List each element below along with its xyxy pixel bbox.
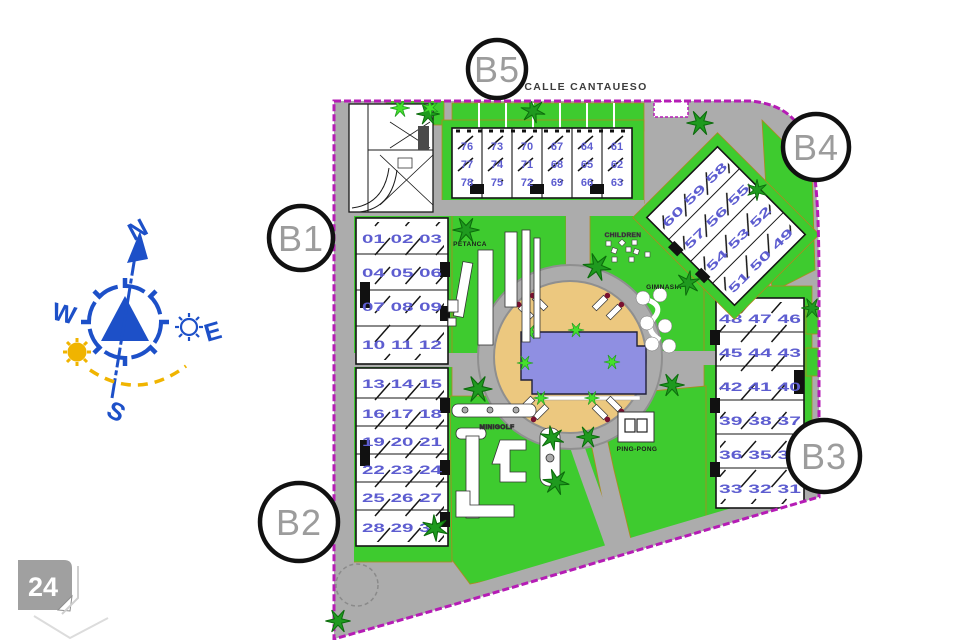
svg-text:13 14 15: 13 14 15 — [362, 377, 443, 391]
svg-text:676869: 676869 — [551, 141, 563, 189]
svg-text:B5: B5 — [474, 49, 520, 90]
svg-text:45 44 43: 45 44 43 — [719, 346, 802, 360]
compass-s: S — [102, 396, 130, 429]
pingpong-label: PING-PONG — [617, 446, 658, 453]
compass-e: E — [201, 316, 225, 348]
svg-text:737475: 737475 — [491, 141, 504, 189]
badge-echo2 — [34, 616, 108, 638]
building-b1: 01 02 03 04 05 06 07 08 09 10 11 12 — [356, 218, 450, 364]
svg-text:B4: B4 — [793, 127, 839, 168]
svg-text:25 26 27: 25 26 27 — [362, 491, 443, 505]
entrance-block — [349, 104, 433, 212]
svg-text:19 20 21: 19 20 21 — [362, 435, 443, 449]
page-badge: 24 — [18, 560, 108, 638]
site-area: 767778 737475 707172 676869 646566 61626… — [320, 90, 840, 640]
svg-text:22 23 24: 22 23 24 — [362, 463, 443, 477]
svg-text:39 38 37: 39 38 37 — [719, 414, 802, 428]
svg-text:10 11 12: 10 11 12 — [362, 338, 443, 352]
svg-text:707172: 707172 — [521, 141, 533, 189]
site-plan-drawing: 767778 737475 707172 676869 646566 61626… — [0, 0, 960, 640]
stair-marks — [454, 132, 630, 182]
compass-w: W — [49, 298, 79, 331]
block-badge-b3: B3 — [788, 420, 860, 492]
utility-plot — [654, 101, 688, 117]
sun-outline-icon — [175, 313, 203, 341]
block-badge-b1: B1 — [269, 206, 333, 270]
svg-text:33 32 31: 33 32 31 — [719, 482, 802, 496]
badge-number: 24 — [28, 572, 58, 602]
children-label: CHILDREN — [605, 232, 642, 239]
svg-text:04 05 06: 04 05 06 — [362, 266, 443, 280]
street-label: CALLE CANTAUESO — [524, 81, 647, 93]
svg-text:42 41 40: 42 41 40 — [719, 380, 802, 394]
svg-text:616263: 616263 — [611, 141, 623, 189]
svg-text:B2: B2 — [276, 502, 322, 543]
sun-icon — [63, 338, 91, 366]
block-badge-b2: B2 — [260, 483, 338, 561]
swimming-pool — [521, 332, 646, 394]
svg-text:B3: B3 — [801, 436, 847, 477]
svg-text:767778: 767778 — [461, 141, 473, 189]
svg-text:16 17 18: 16 17 18 — [362, 407, 443, 421]
petanca-label: PETANCA — [453, 241, 487, 248]
compass-n: N — [123, 213, 152, 246]
svg-text:07 08 09: 07 08 09 — [362, 300, 443, 314]
block-badge-b4: B4 — [783, 114, 849, 180]
svg-text:646566: 646566 — [581, 141, 594, 189]
stair-marks — [720, 302, 800, 504]
minigolf-label: MINIGOLF — [480, 424, 515, 431]
svg-text:01 02 03: 01 02 03 — [362, 232, 443, 246]
lawn-parking-b3 — [806, 348, 818, 376]
block-badge-b5: B5 — [468, 40, 526, 98]
sun-path-arc — [90, 366, 186, 385]
pingpong-area: PING-PONG — [617, 412, 658, 453]
stair-marks — [360, 372, 444, 542]
compass-rose: N W E S — [49, 213, 225, 428]
building-b5: 767778 737475 707172 676869 646566 61626… — [452, 128, 632, 198]
building-b3: 48 47 46 45 44 43 42 41 40 39 38 37 36 3… — [710, 298, 804, 508]
site-plan-page: 767778 737475 707172 676869 646566 61626… — [0, 0, 960, 640]
svg-text:B1: B1 — [278, 218, 324, 259]
